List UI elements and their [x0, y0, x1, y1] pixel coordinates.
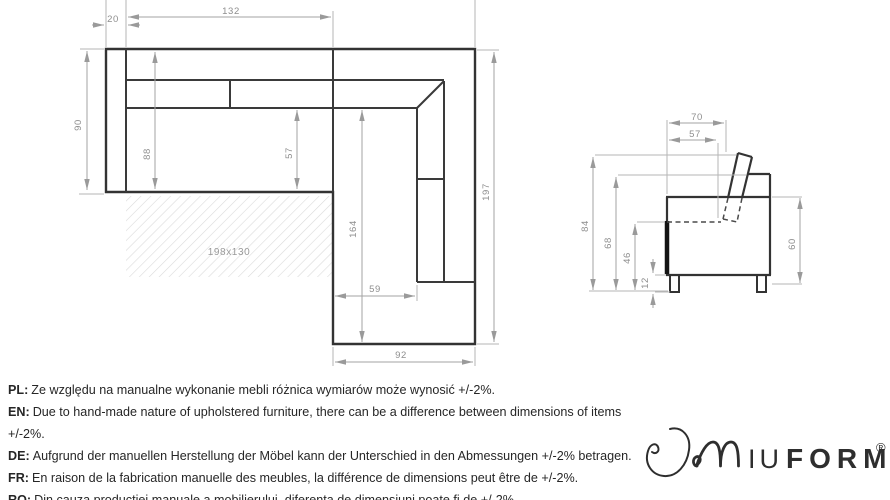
- dim-84-label: 84: [580, 220, 591, 232]
- miuform-logo: IU FORM ®: [640, 398, 890, 498]
- top-view: 198x130: [73, 0, 499, 366]
- hidden-dashed-lines: [667, 198, 742, 222]
- note-fr-label: FR:: [8, 471, 29, 485]
- note-de-label: DE:: [8, 449, 30, 463]
- dim-12-label: 12: [640, 277, 651, 289]
- note-de: DE:Aufgrund der manuellen Herstellung de…: [8, 445, 648, 467]
- note-ro-text: Din cauza producției manuale a mobilieru…: [34, 493, 517, 500]
- dim-90-label: 90: [73, 119, 84, 131]
- logo-registered-mark: ®: [876, 440, 886, 455]
- mattress-hatch-area: [126, 196, 332, 277]
- dim-68-label: 68: [603, 237, 614, 249]
- note-pl: PL:Ze względu na manualne wykonanie mebl…: [8, 379, 648, 401]
- side-view: 70 57 84 68 46 12 60: [580, 112, 802, 308]
- logo-bean-icon: [647, 428, 689, 476]
- dim-57-label: 57: [284, 147, 295, 159]
- note-en-label: EN:: [8, 405, 30, 419]
- note-fr: FR:En raison de la fabrication manuelle …: [8, 467, 648, 489]
- dim-59-label: 59: [369, 284, 381, 295]
- dim-70-label: 70: [691, 112, 703, 123]
- note-ro-label: RO:: [8, 493, 31, 500]
- top-view-extension-lines: [79, 0, 499, 366]
- tolerance-notes: PL:Ze względu na manualne wykonanie mebl…: [8, 379, 648, 500]
- dim-92-label: 92: [395, 350, 407, 361]
- note-en-text: Due to hand-made nature of upholstered f…: [8, 405, 621, 441]
- note-ro: RO:Din cauza producției manuale a mobili…: [8, 489, 648, 500]
- logo-form-text: FORM: [786, 443, 890, 474]
- note-en: EN:Due to hand-made nature of upholstere…: [8, 401, 648, 445]
- dim-20-label: 20: [107, 14, 119, 25]
- note-fr-text: En raison de la fabrication manuelle des…: [32, 471, 578, 485]
- mattress-size-label: 198x130: [208, 247, 251, 258]
- top-view-dimension-lines: [87, 17, 494, 362]
- note-pl-label: PL:: [8, 383, 28, 397]
- dim-57-side-label: 57: [689, 129, 701, 140]
- dim-164-label: 164: [348, 220, 359, 238]
- dim-197-label: 197: [481, 183, 492, 201]
- dim-60-label: 60: [787, 238, 798, 250]
- logo-m-glyph: [693, 442, 738, 466]
- furniture-dimension-sheet: { "top_view": { "title": "corner-sofa-to…: [0, 0, 890, 500]
- dim-88-label: 88: [142, 148, 153, 160]
- logo-iu-text: IU: [748, 444, 783, 474]
- note-de-text: Aufgrund der manuellen Herstellung der M…: [33, 449, 632, 463]
- dim-46-label: 46: [622, 252, 633, 264]
- dim-132-label: 132: [222, 6, 240, 17]
- technical-drawing: 198x130: [0, 0, 890, 375]
- note-pl-text: Ze względu na manualne wykonanie mebli r…: [31, 383, 495, 397]
